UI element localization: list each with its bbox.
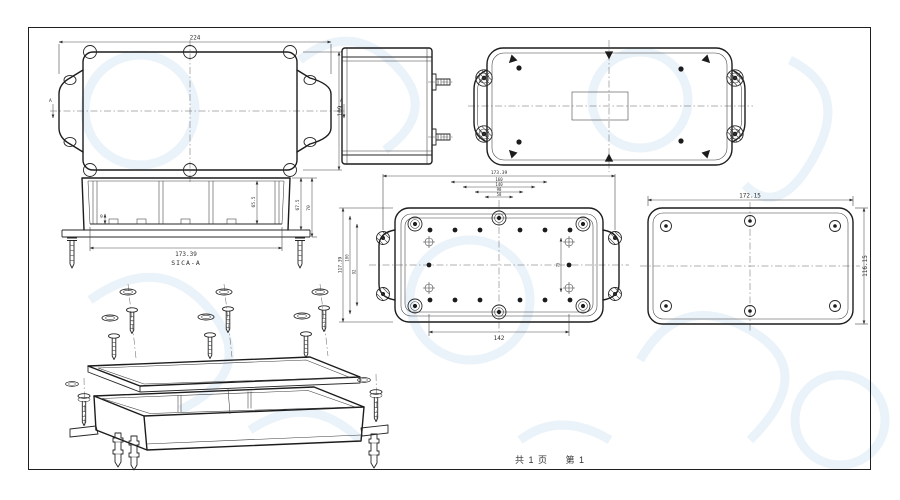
screw-bottom — [428, 129, 455, 145]
part-outline — [474, 48, 745, 165]
view-cover-top — [468, 34, 753, 176]
dim-depth-outer: 70 — [306, 205, 312, 211]
view-section-aa: 173.39 SICA-A 65.5 67.5 70 9 — [55, 172, 345, 284]
dim-width: 172.15 — [739, 193, 761, 200]
part-outline — [62, 178, 310, 237]
part-outline — [342, 48, 432, 164]
dim-width: 173.39 — [175, 251, 197, 258]
dim-depth-inner: 65.5 — [251, 196, 257, 207]
view-exploded-assembly — [58, 278, 398, 474]
dimensions: 173.39 SICA-A 65.5 67.5 70 9 — [90, 178, 317, 267]
box-body — [94, 387, 364, 450]
dim-bottom: 142 — [494, 335, 505, 342]
footer-page-number: 第 1 — [566, 455, 586, 465]
dim-rib: 9 — [100, 214, 103, 220]
view-cover-outside: 224 109 A A — [48, 34, 348, 182]
dim-left-inner: 92 — [352, 269, 357, 274]
dim-right: 75 — [556, 262, 561, 267]
screw-top — [428, 74, 455, 90]
section-label: SICA-A — [171, 259, 200, 267]
dimensions: 172.15 116.15 — [648, 193, 869, 325]
dim-height: 116.15 — [862, 255, 869, 277]
dim-left-outer: 117.39 — [338, 256, 344, 273]
lid-screws-and-washers — [102, 289, 330, 360]
dim-top: 173.39 — [491, 170, 508, 176]
view-body-side — [336, 42, 458, 172]
footer-total-pages: 共 1 页 — [515, 455, 548, 465]
dim-width: 224 — [190, 35, 201, 42]
lid — [88, 357, 360, 392]
dim-depth-mid: 67.5 — [295, 199, 301, 210]
section-marker-left: A — [49, 98, 52, 104]
flange-screw-left — [67, 238, 77, 268]
centerlines — [50, 40, 346, 182]
wall-anchors — [113, 433, 379, 470]
view-cover-inside: 172.15 116.15 — [640, 192, 878, 342]
drawing-page: 224 109 A A — [0, 0, 900, 500]
page-footer: 共 1 页 第 1 — [470, 453, 630, 466]
holes-and-label-area — [516, 65, 683, 144]
dim-stack-3: 58 — [497, 192, 502, 197]
flange-screw-right — [295, 238, 305, 268]
dim-left-mid: 100 — [345, 254, 350, 262]
